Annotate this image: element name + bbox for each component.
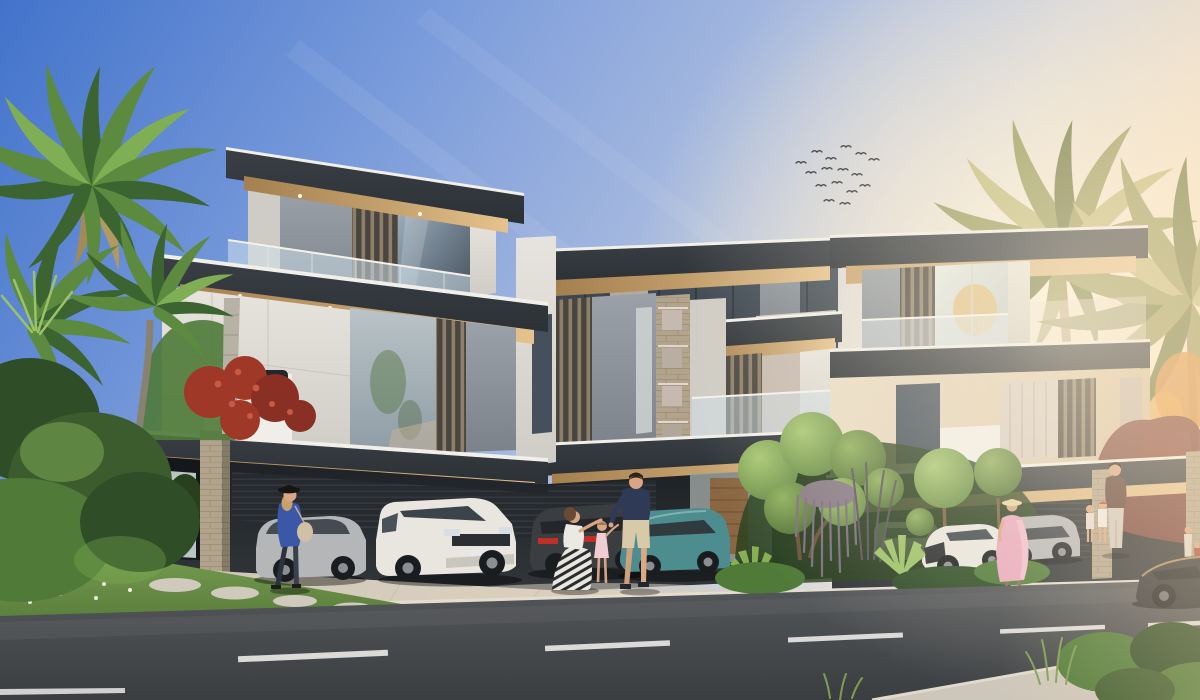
sunlight-overlay — [0, 0, 1200, 700]
architectural-rendering — [0, 0, 1200, 700]
